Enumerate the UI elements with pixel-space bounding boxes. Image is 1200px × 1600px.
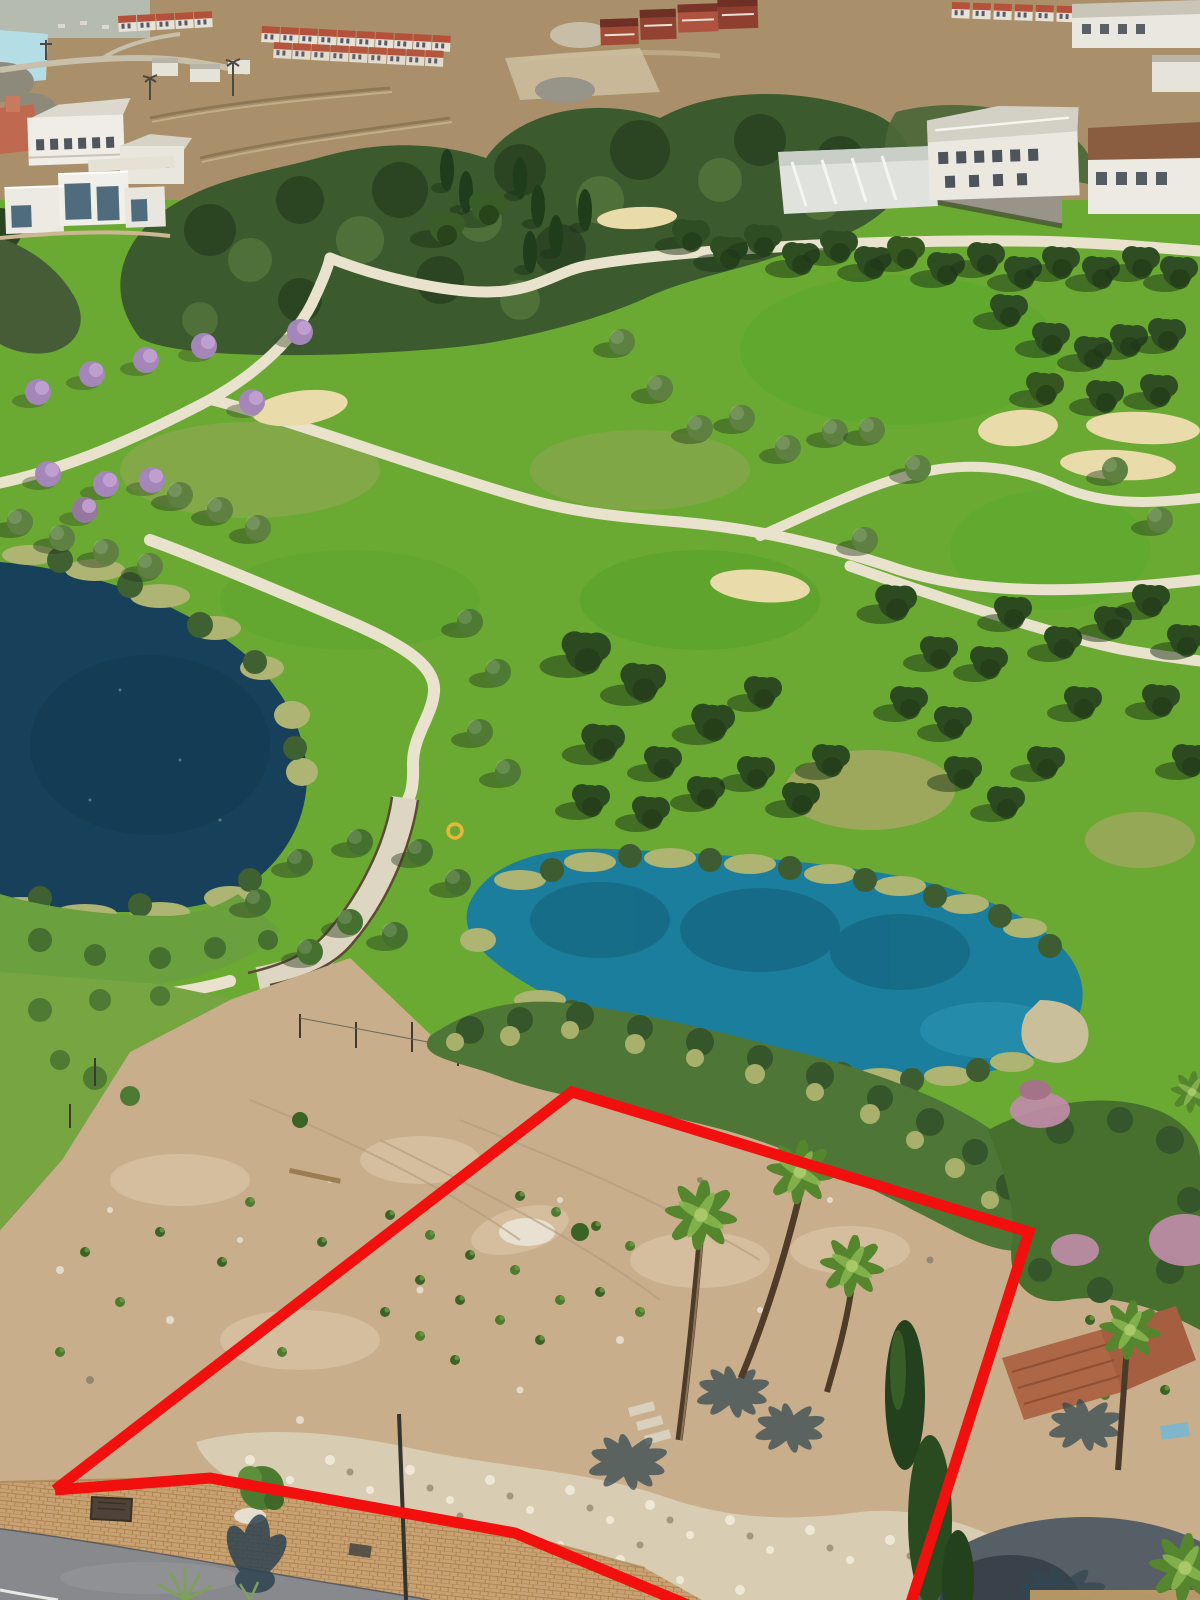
- right-house: [1088, 122, 1200, 214]
- brick-edge: [1030, 1590, 1200, 1600]
- scene-canvas: [0, 0, 1200, 1600]
- aerial-photo: [0, 0, 1200, 1600]
- clubhouse-greenhouse: [778, 146, 938, 214]
- manhole-cover: [91, 1497, 132, 1521]
- right-mansion: [927, 103, 1082, 200]
